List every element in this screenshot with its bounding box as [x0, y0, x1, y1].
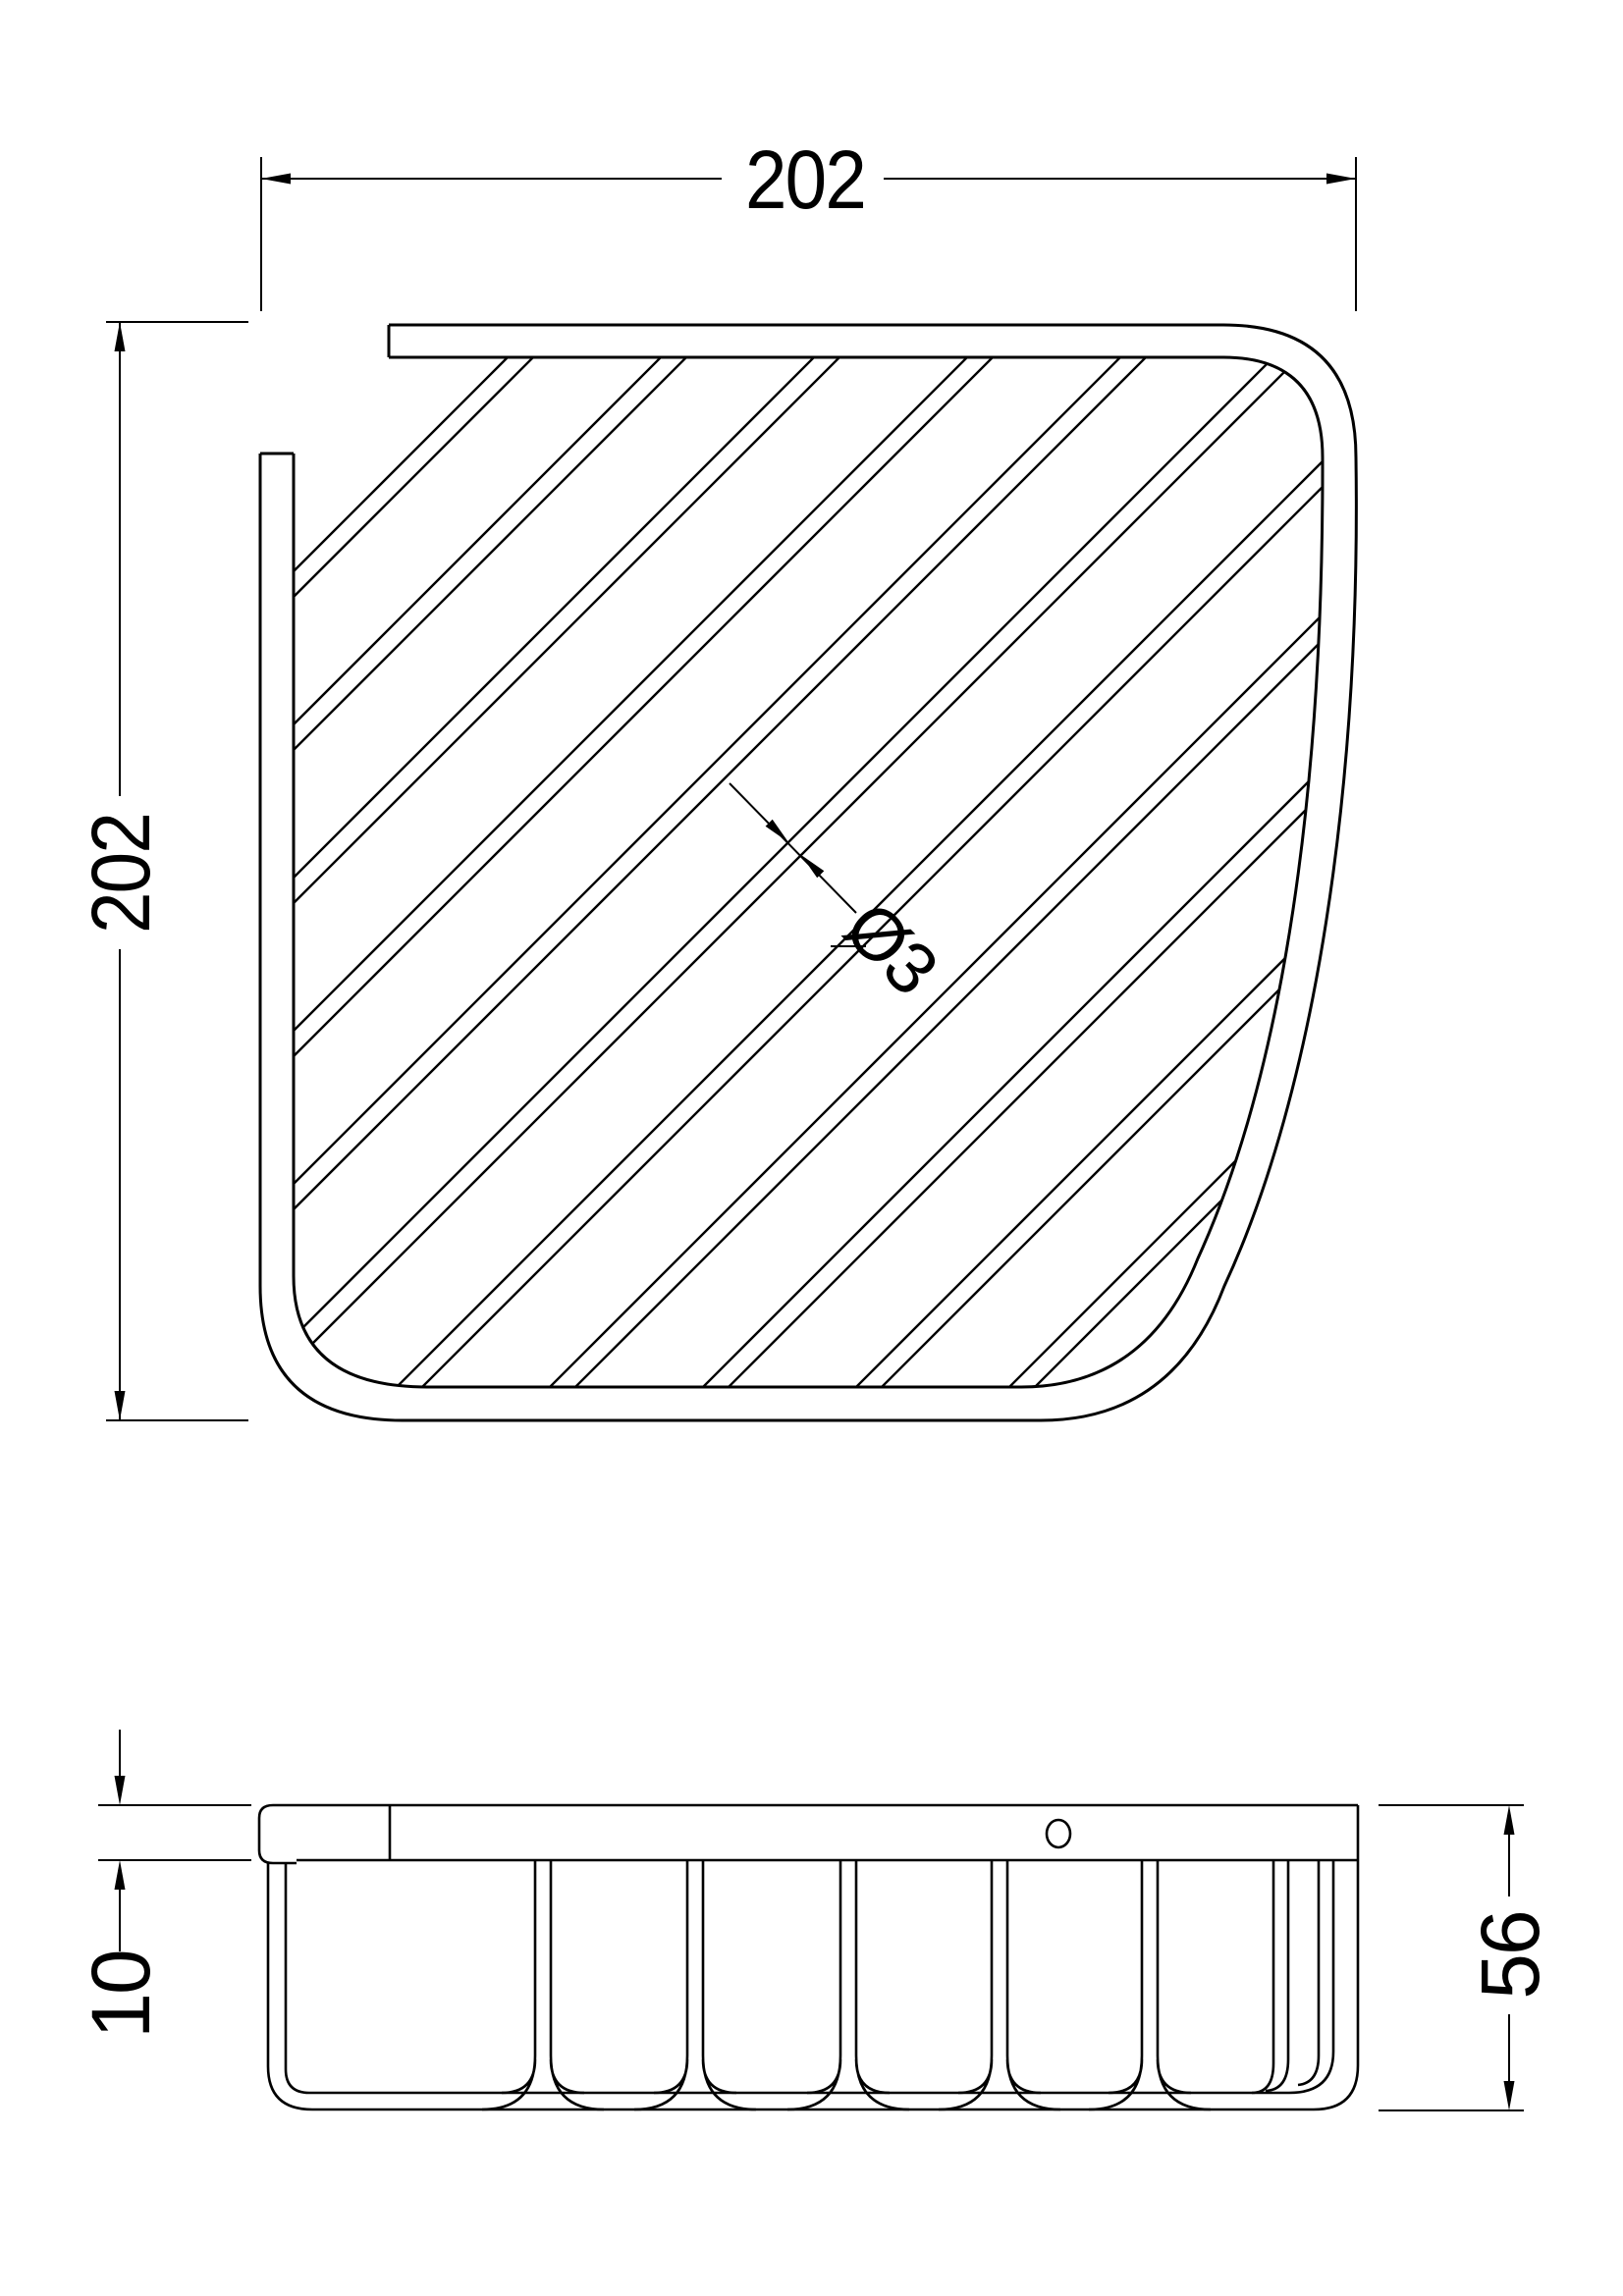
dimension-left-height-text: 202: [75, 814, 167, 934]
dimension-overall-height-text: 56: [1464, 1911, 1556, 1999]
dimension-rail-thickness-text: 10: [75, 1950, 167, 2038]
technical-drawing-canvas: Ø3 202 202: [0, 0, 1623, 2296]
dimension-top-width-text: 202: [745, 133, 865, 226]
page-background: [0, 0, 1623, 2296]
drawing-page: Ø3 202 202: [0, 0, 1623, 2296]
